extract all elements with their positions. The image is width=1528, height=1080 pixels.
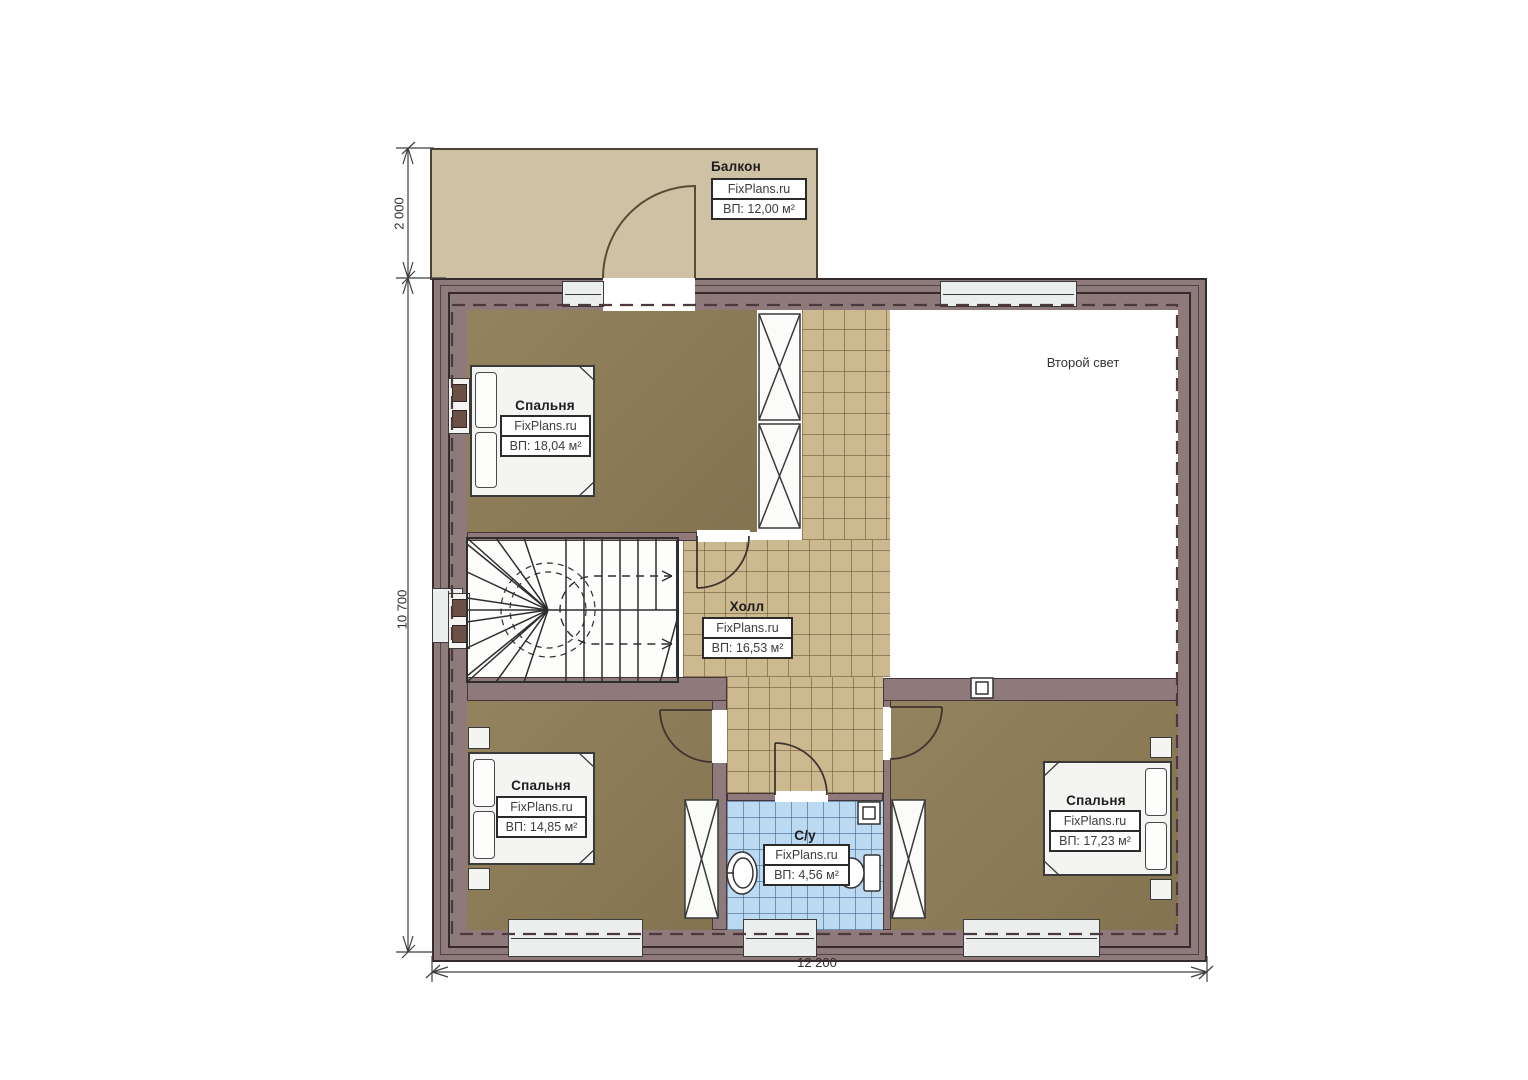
hall-floor-corridor: [727, 677, 883, 793]
stairs-area: [467, 538, 678, 682]
bedroom-bl-name: Спальня: [491, 778, 591, 793]
area-label: ВП: 4,56 м²: [765, 866, 848, 884]
bathroom-name: С/у: [765, 828, 845, 843]
pillow: [475, 432, 497, 488]
bedroom-tl-name: Спальня: [495, 398, 595, 413]
wardrobe-niche-top-left: [757, 310, 802, 532]
flue-cell: [452, 410, 467, 428]
window-top-left: [562, 281, 604, 307]
door-opening-bedroom-tl: [697, 530, 750, 542]
brand-label: FixPlans.ru: [1051, 812, 1139, 832]
window-frame-line: [943, 294, 1074, 295]
balcony-label-box: FixPlans.ru ВП: 12,00 м²: [711, 178, 807, 220]
nightstand: [468, 727, 490, 749]
dimension-balcony-depth: 2 000: [392, 184, 407, 244]
dimension-bottom-width: 12 200: [772, 955, 862, 970]
door-opening-balcony: [603, 278, 695, 311]
window-frame-line: [565, 294, 601, 295]
wall-bedroom-br-top: [883, 678, 1178, 701]
nightstand: [468, 868, 490, 890]
pillow: [475, 372, 497, 428]
window-frame-line: [511, 938, 640, 939]
dimension-left-height: 10 700: [395, 575, 410, 645]
window-top-right: [940, 281, 1077, 307]
area-label: ВП: 17,23 м²: [1051, 832, 1139, 850]
pillow: [473, 811, 495, 859]
door-opening-bedroom-br: [883, 707, 891, 760]
area-label: ВП: 16,53 м²: [704, 639, 791, 657]
door-opening-bathroom: [775, 791, 828, 802]
bedroom-bl-label-box: FixPlans.ru ВП: 14,85 м²: [496, 796, 587, 838]
window-bottom-right: [963, 919, 1100, 957]
flue-block-upper: [448, 378, 470, 434]
flue-cell: [452, 599, 467, 617]
door-opening-bedroom-bl: [712, 710, 727, 763]
brand-label: FixPlans.ru: [498, 798, 585, 818]
bathroom-label-box: FixPlans.ru ВП: 4,56 м²: [763, 844, 850, 886]
floor-plan-canvas: Балкон FixPlans.ru ВП: 12,00 м² Спальня …: [0, 0, 1528, 1080]
flue-cell: [452, 384, 467, 402]
flue-block-lower: [448, 593, 470, 649]
window-bottom-bathroom: [743, 919, 817, 957]
brand-label: FixPlans.ru: [502, 417, 589, 437]
bedroom-br-label-box: FixPlans.ru ВП: 17,23 м²: [1049, 810, 1141, 852]
wall-below-stairs: [467, 677, 727, 701]
bedroom-br-name: Спальня: [1046, 793, 1146, 808]
wall-below-bedroom-tl: [467, 532, 697, 541]
hall-floor-upper: [802, 310, 890, 540]
brand-label: FixPlans.ru: [713, 180, 805, 200]
flue-cell: [452, 625, 467, 643]
window-bottom-left: [508, 919, 643, 957]
hall-label-box: FixPlans.ru ВП: 16,53 м²: [702, 617, 793, 659]
second-light-label: Второй свет: [1013, 355, 1153, 370]
balcony-name: Балкон: [711, 159, 775, 174]
area-label: ВП: 14,85 м²: [498, 818, 585, 836]
nightstand: [1150, 879, 1172, 900]
hall-name: Холл: [697, 599, 797, 614]
nightstand: [1150, 737, 1172, 758]
area-label: ВП: 18,04 м²: [502, 437, 589, 455]
window-frame-line: [746, 938, 814, 939]
brand-label: FixPlans.ru: [704, 619, 791, 639]
pillow: [1145, 822, 1167, 870]
brand-label: FixPlans.ru: [765, 846, 848, 866]
area-label: ВП: 12,00 м²: [713, 200, 805, 218]
window-frame-line: [966, 938, 1097, 939]
bedroom-tl-label-box: FixPlans.ru ВП: 18,04 м²: [500, 415, 591, 457]
pillow: [1145, 768, 1167, 816]
